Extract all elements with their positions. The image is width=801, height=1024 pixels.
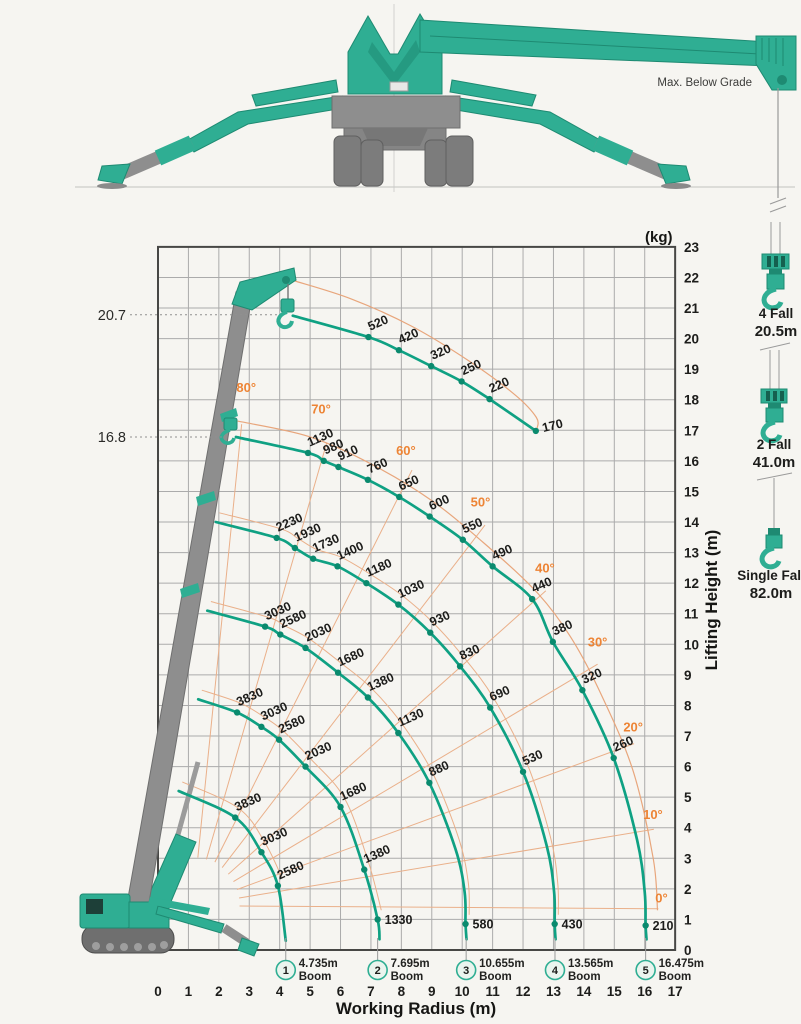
boom-number: 4 xyxy=(552,965,559,977)
data-point xyxy=(462,921,468,927)
y-tick-label: 3 xyxy=(684,851,692,866)
x-tick-label: 12 xyxy=(516,984,531,999)
capacity-value: 580 xyxy=(473,918,494,932)
y-tick-label: 16 xyxy=(684,454,700,469)
capacity-curve-boom-2-7.695m xyxy=(198,699,379,939)
hook-body xyxy=(766,535,782,548)
data-point xyxy=(305,450,311,456)
height-marker-label: 20.7 xyxy=(98,308,126,324)
capacity-value: 220 xyxy=(487,374,512,395)
boom-angle-label: 20° xyxy=(623,719,643,734)
y-tick-label: 8 xyxy=(684,698,692,713)
capacity-value: 1030 xyxy=(395,577,426,601)
swivel xyxy=(768,403,781,408)
y-tick-label: 10 xyxy=(684,637,699,652)
capacity-value: 2030 xyxy=(303,739,334,763)
data-point xyxy=(275,883,281,889)
data-point xyxy=(428,363,434,369)
x-tick-label: 0 xyxy=(154,984,162,999)
cab-window xyxy=(86,899,103,914)
x-tick-label: 17 xyxy=(668,984,683,999)
hook-block-single: Single Fall 82.0m xyxy=(737,473,801,602)
data-point xyxy=(310,556,316,562)
data-point xyxy=(361,866,367,872)
data-point xyxy=(395,601,401,607)
y-tick-label: 1 xyxy=(684,912,692,927)
top-hook-block xyxy=(281,299,294,312)
boom-length-label: 16.475m xyxy=(659,958,704,970)
capacity-value: 550 xyxy=(460,515,485,536)
track-wheel xyxy=(148,943,156,951)
capacity-value: 3030 xyxy=(259,825,290,849)
top-crane-illustration: Max. Below Grade xyxy=(75,4,796,212)
y-tick-label: 4 xyxy=(684,821,692,836)
crane-load-chart: 5204203202502201701130980910760650600550… xyxy=(0,0,801,1024)
data-point xyxy=(458,378,464,384)
data-point xyxy=(489,563,495,569)
head-sheave xyxy=(777,75,787,85)
boom-number: 3 xyxy=(463,965,469,977)
track-wheel xyxy=(92,942,100,950)
hook-blocks: 4 Fall 20.5m 2 Fall 41.0m Single Fall 82… xyxy=(737,222,801,602)
wheel xyxy=(361,140,383,186)
boom-length-label: 7.695m xyxy=(391,958,430,970)
data-point xyxy=(335,670,341,676)
capacity-value: 1380 xyxy=(365,670,396,694)
boom-length-label: 10.655m xyxy=(479,958,524,970)
capacity-value: 530 xyxy=(520,747,545,768)
y-tick-label: 0 xyxy=(684,943,692,958)
x-tick-label: 6 xyxy=(337,984,345,999)
data-point xyxy=(426,780,432,786)
data-point xyxy=(642,922,648,928)
sheave-slot xyxy=(781,256,785,267)
x-tick-label: 9 xyxy=(428,984,436,999)
track-wheel xyxy=(160,941,168,949)
data-point xyxy=(321,458,327,464)
top-hook-icon xyxy=(278,312,292,327)
x-tick-label: 15 xyxy=(607,984,623,999)
y-axis-title: Lifting Height (m) xyxy=(702,530,721,671)
boom-angle-label: 60° xyxy=(396,443,416,458)
x-tick-label: 3 xyxy=(246,984,254,999)
boom-caption: Boom xyxy=(391,971,424,983)
x-tick-label: 14 xyxy=(576,984,592,999)
data-point xyxy=(460,537,466,543)
boom-angle-label: 10° xyxy=(643,807,663,822)
data-point xyxy=(363,580,369,586)
data-point xyxy=(258,724,264,730)
data-point xyxy=(334,563,340,569)
data-point xyxy=(551,921,557,927)
y-tick-label: 5 xyxy=(684,790,692,805)
data-point xyxy=(365,477,371,483)
rope-length-label: 41.0m xyxy=(753,454,796,471)
data-point xyxy=(302,645,308,651)
boom-angle-fan xyxy=(182,281,658,915)
data-point xyxy=(292,545,298,551)
x-tick-label: 7 xyxy=(367,984,375,999)
y-tick-label: 11 xyxy=(684,607,699,622)
data-point xyxy=(487,704,493,710)
boom-angle-label: 40° xyxy=(535,560,555,575)
rope-length-label: 82.0m xyxy=(750,585,793,602)
y-tick-label: 13 xyxy=(684,546,700,561)
x-tick-label: 10 xyxy=(455,984,470,999)
boom-number: 5 xyxy=(643,965,649,977)
boom-length-label: 13.565m xyxy=(568,958,613,970)
capacity-value: 1680 xyxy=(338,779,369,803)
foot-pad-left xyxy=(97,183,127,189)
sheave-slot xyxy=(766,391,770,401)
angle-line-0° xyxy=(240,906,659,909)
y-tick-label: 18 xyxy=(684,393,700,408)
boom-head-sheave xyxy=(282,276,290,284)
x-tick-label: 11 xyxy=(485,984,500,999)
carbody xyxy=(332,96,460,128)
wheel xyxy=(446,136,473,186)
sheave-slot xyxy=(774,256,778,267)
angle-line-30° xyxy=(233,664,597,881)
data-point xyxy=(258,849,264,855)
sheave-slot xyxy=(780,391,784,401)
capacity-value: 930 xyxy=(427,608,452,629)
y-tick-label: 7 xyxy=(684,729,692,744)
capacity-value: 880 xyxy=(426,758,451,779)
fall-count-label: 2 Fall xyxy=(757,437,792,452)
boom-angle-label: 70° xyxy=(311,401,331,416)
mid-hook-block xyxy=(224,418,237,430)
data-point xyxy=(335,464,341,470)
boom-angle-label: 30° xyxy=(588,635,608,650)
unit-label: (kg) xyxy=(645,229,673,246)
y-tick-label: 2 xyxy=(684,882,692,897)
y-tick-label: 15 xyxy=(684,484,700,499)
capacity-value: 440 xyxy=(529,574,554,595)
y-tick-label: 20 xyxy=(684,332,699,347)
capacity-value: 1130 xyxy=(395,706,426,730)
capacity-value: 170 xyxy=(541,416,565,435)
capacity-value: 430 xyxy=(562,918,583,932)
y-tick-label: 17 xyxy=(684,423,699,438)
capacity-value: 1180 xyxy=(364,556,395,580)
capacity-curves: 5204203202502201701130980910760650600550… xyxy=(179,312,674,940)
height-marker-label: 16.8 xyxy=(98,430,126,446)
data-point xyxy=(426,513,432,519)
capacity-value: 3830 xyxy=(232,790,263,814)
outrigger-sleeve-left xyxy=(158,143,192,158)
data-point xyxy=(427,629,433,635)
data-point xyxy=(302,763,308,769)
rope-length-label: 20.5m xyxy=(755,323,798,340)
max-below-grade-label: Max. Below Grade xyxy=(657,77,752,89)
hook-block-4fall: 4 Fall 20.5m xyxy=(755,222,798,340)
boom-caption: Boom xyxy=(299,971,332,983)
boom-angle-label: 80° xyxy=(236,380,256,395)
data-point xyxy=(457,663,463,669)
sheave-slot xyxy=(767,256,771,267)
telescopic-boom xyxy=(123,292,252,926)
data-point xyxy=(337,804,343,810)
data-point xyxy=(486,396,492,402)
sheave-slot xyxy=(773,391,777,401)
boom-number: 2 xyxy=(375,965,381,977)
outrigger-foot xyxy=(238,938,259,956)
capacity-value: 760 xyxy=(365,455,390,476)
boom-horizontal xyxy=(420,20,768,66)
track-wheel xyxy=(106,943,114,951)
y-tick-label: 6 xyxy=(684,760,692,775)
data-point xyxy=(365,334,371,340)
capacity-value: 1330 xyxy=(385,913,413,927)
y-tick-label: 19 xyxy=(684,362,699,377)
outrigger-foot-right xyxy=(658,164,690,184)
x-tick-label: 2 xyxy=(215,984,223,999)
wheel xyxy=(425,140,447,186)
capacity-value: 490 xyxy=(490,542,515,563)
track-wheel xyxy=(134,943,142,951)
boom-length-label: 4.735m xyxy=(299,958,338,970)
data-point xyxy=(365,694,371,700)
capacity-value: 320 xyxy=(580,665,605,686)
capacity-value: 210 xyxy=(653,919,674,933)
rope-break-mark xyxy=(760,343,790,350)
x-axis-title: Working Radius (m) xyxy=(336,999,496,1018)
data-point xyxy=(533,428,539,434)
data-point xyxy=(520,769,526,775)
boom-caption: Boom xyxy=(568,971,601,983)
data-point xyxy=(277,631,283,637)
wheel xyxy=(334,136,361,186)
x-tick-label: 16 xyxy=(637,984,653,999)
outrigger-foot-left xyxy=(98,164,130,184)
data-point xyxy=(262,623,268,629)
load-chart-page: 5204203202502201701130980910760650600550… xyxy=(0,0,801,1024)
fall-count-label: Single Fall xyxy=(737,568,801,583)
x-tick-label: 1 xyxy=(185,984,193,999)
x-tick-label: 8 xyxy=(398,984,406,999)
y-tick-label: 21 xyxy=(684,301,700,316)
hook-icon xyxy=(762,548,779,567)
data-point xyxy=(232,814,238,820)
outrigger-sleeve-right xyxy=(596,143,630,158)
data-point xyxy=(273,535,279,541)
capacity-value: 2030 xyxy=(303,620,334,644)
superstructure-plate xyxy=(390,82,408,91)
y-tick-label: 22 xyxy=(684,270,699,285)
data-point xyxy=(550,639,556,645)
capacity-value: 1380 xyxy=(361,842,392,866)
capacity-value: 690 xyxy=(487,683,512,704)
data-point xyxy=(234,709,240,715)
x-tick-label: 13 xyxy=(546,984,562,999)
capacity-value: 1680 xyxy=(335,645,366,669)
foot-pad-right xyxy=(661,183,691,189)
data-point xyxy=(276,736,282,742)
data-point xyxy=(396,494,402,500)
boom-angle-label: 50° xyxy=(471,495,491,510)
y-tick-label: 12 xyxy=(684,576,699,591)
capacity-value: 600 xyxy=(427,492,452,513)
rope-break-mark xyxy=(770,198,786,204)
data-point xyxy=(610,755,616,761)
swivel xyxy=(769,269,782,274)
data-point xyxy=(374,916,380,922)
hook-icon xyxy=(764,289,781,308)
x-tick-label: 4 xyxy=(276,984,284,999)
capacity-value: 520 xyxy=(366,312,391,333)
data-point xyxy=(395,730,401,736)
x-tick-label: 5 xyxy=(306,984,314,999)
rope-break-mark xyxy=(770,206,786,212)
boom-angle-label: 0° xyxy=(655,891,667,906)
swivel xyxy=(768,528,780,535)
hook-block-2fall: 2 Fall 41.0m xyxy=(753,343,796,471)
boom-caption: Boom xyxy=(479,971,512,983)
y-tick-label: 9 xyxy=(684,668,692,683)
data-point xyxy=(579,687,585,693)
data-point xyxy=(529,596,535,602)
y-tick-label: 14 xyxy=(684,515,700,530)
y-tick-label: 23 xyxy=(684,240,700,255)
fall-count-label: 4 Fall xyxy=(759,306,794,321)
data-point xyxy=(396,347,402,353)
track-wheel xyxy=(120,943,128,951)
boom-caption: Boom xyxy=(659,971,692,983)
boom-number: 1 xyxy=(283,965,289,977)
